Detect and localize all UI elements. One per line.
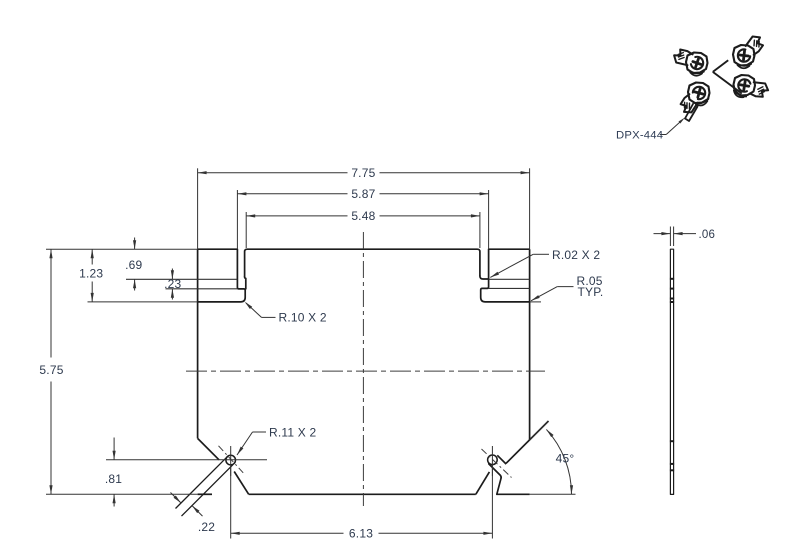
svg-text:.69: .69 [125,258,142,272]
svg-text:1.23: 1.23 [79,266,103,280]
svg-text:.23: .23 [164,277,181,291]
svg-text:TYP.: TYP. [578,285,604,299]
svg-text:45°: 45° [556,452,575,466]
svg-text:5.75: 5.75 [39,363,63,377]
svg-text:5.48: 5.48 [351,209,375,223]
svg-text:6.13: 6.13 [349,527,373,541]
svg-text:R.10 X 2: R.10 X 2 [279,311,327,325]
svg-text:.81: .81 [105,472,122,486]
svg-text:7.75: 7.75 [351,166,375,180]
svg-text:R.11 X 2: R.11 X 2 [269,426,317,440]
svg-text:DPX-444: DPX-444 [616,130,663,142]
svg-text:5.87: 5.87 [351,187,375,201]
svg-text:.22: .22 [198,520,215,534]
svg-text:.06: .06 [699,229,716,241]
svg-text:R.02 X 2: R.02 X 2 [552,248,600,262]
